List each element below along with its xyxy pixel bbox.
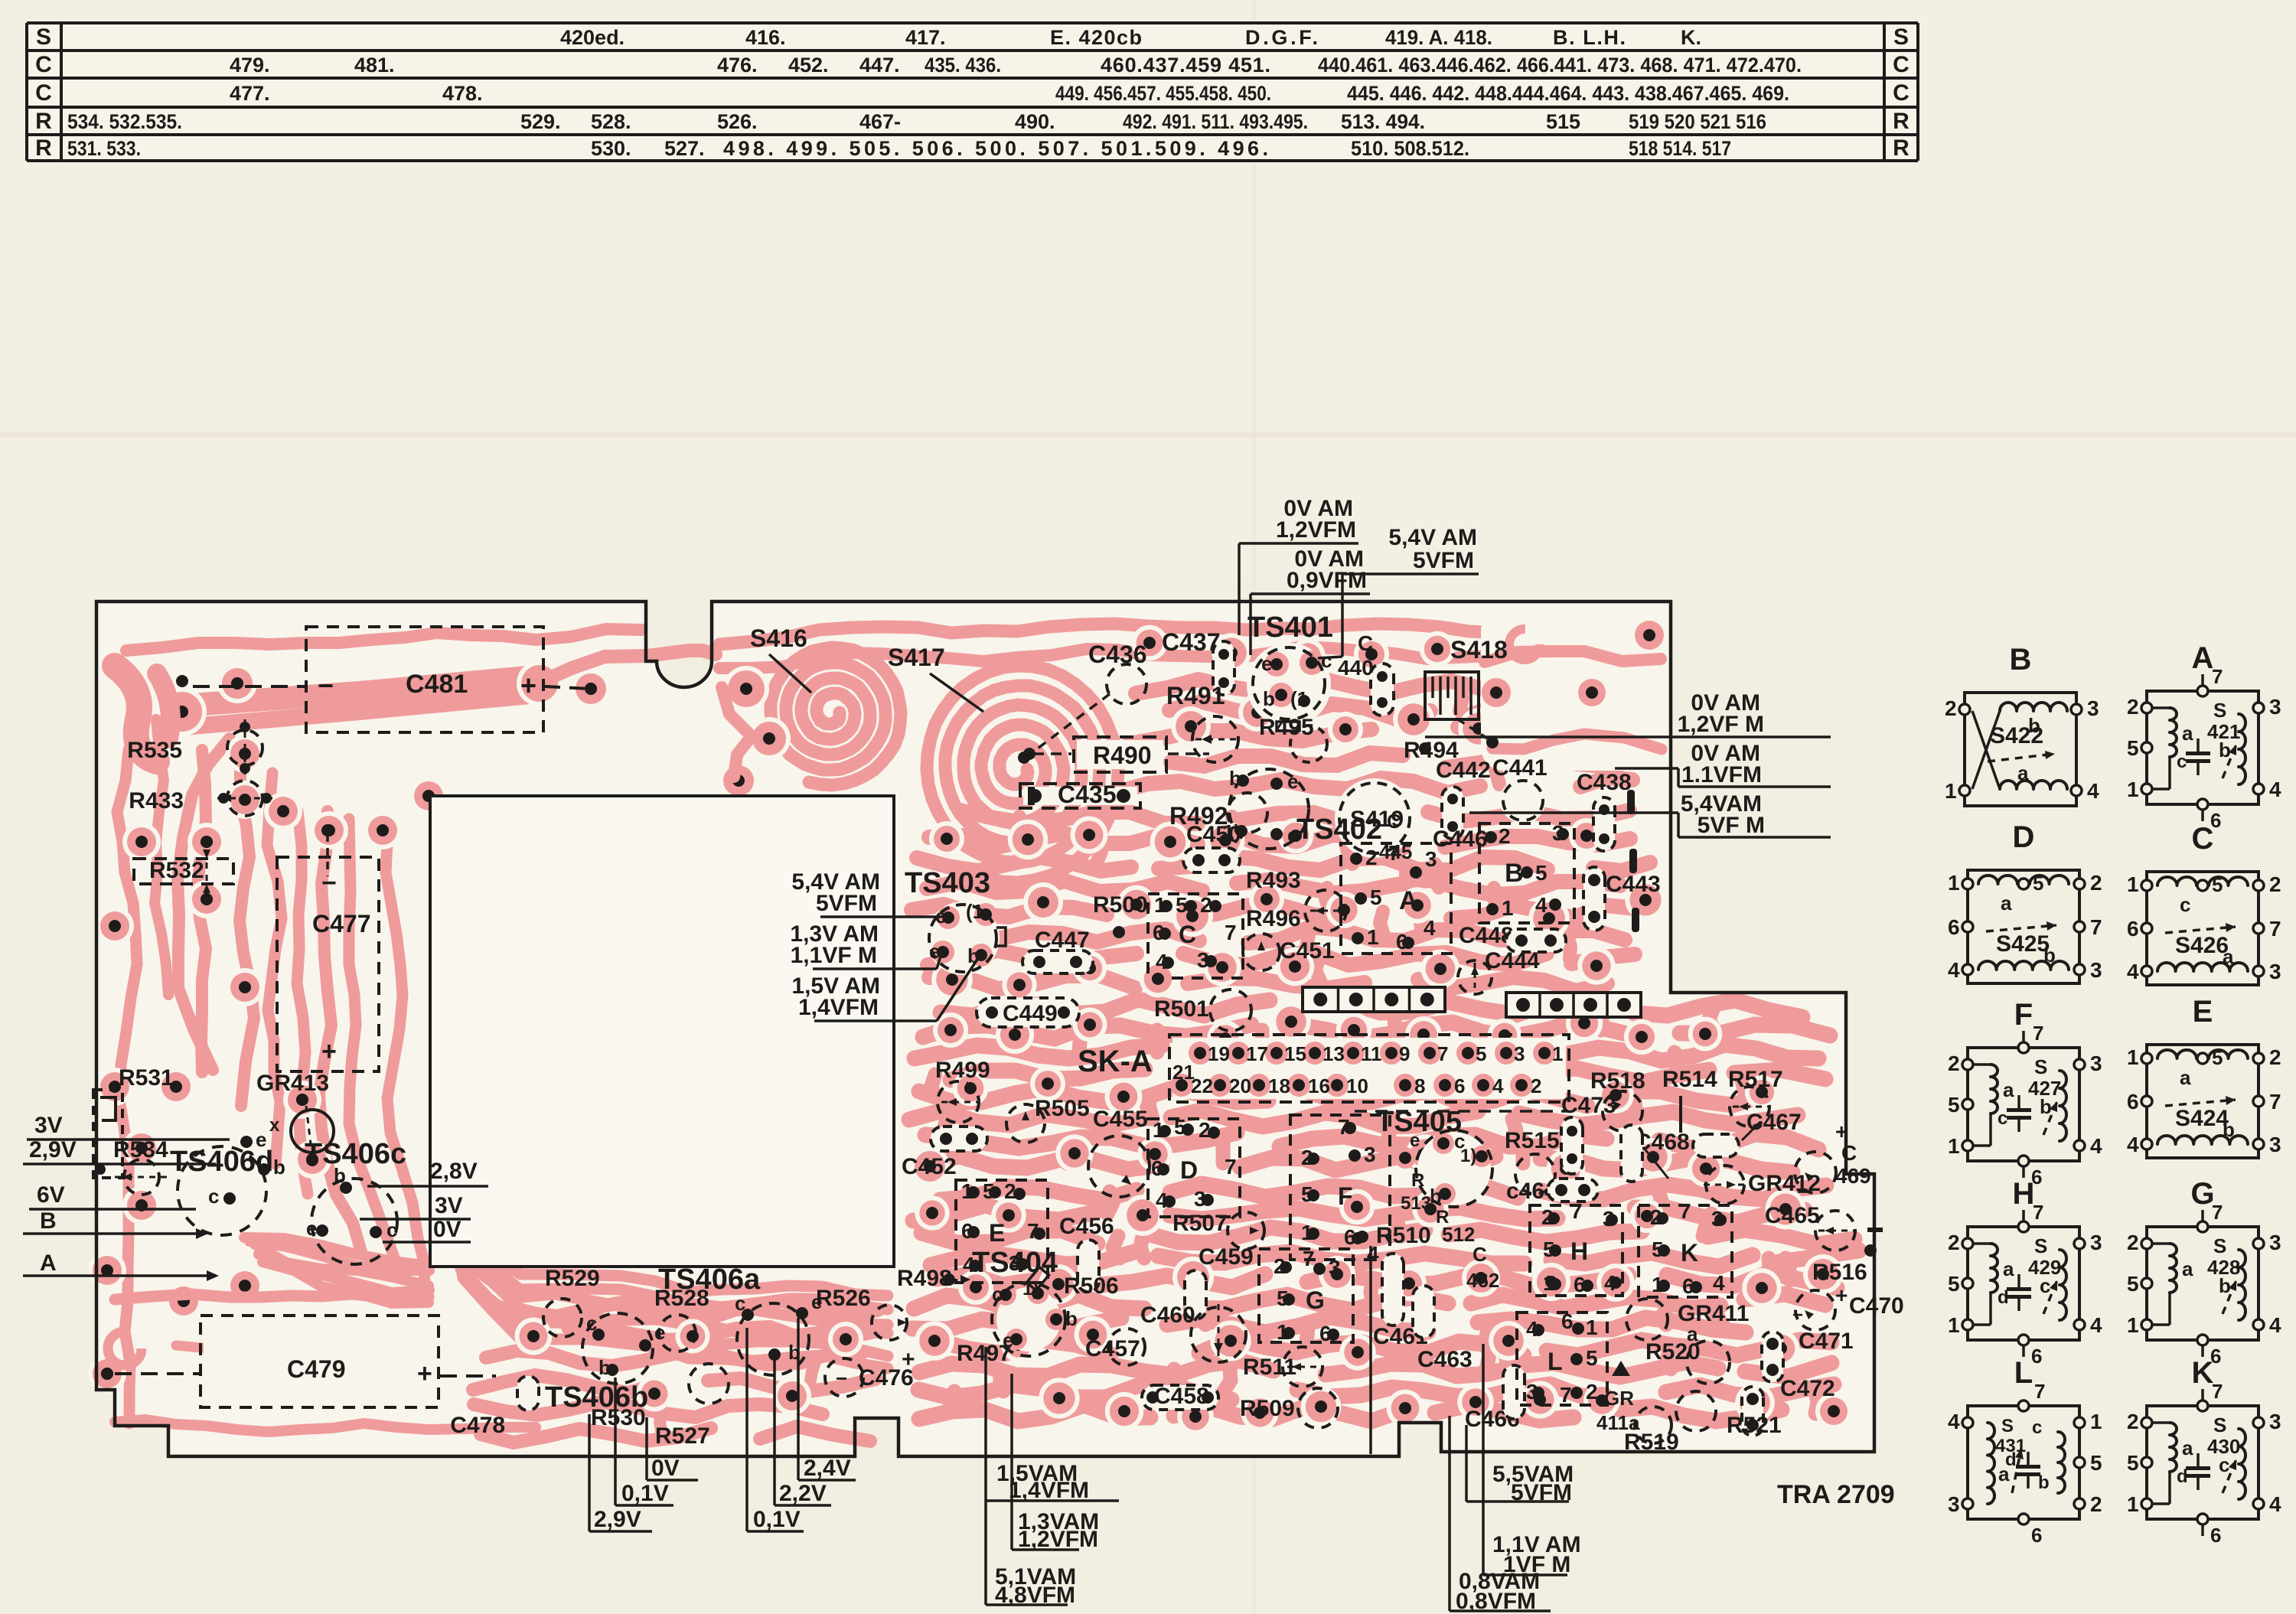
svg-text:5VFM: 5VFM — [816, 891, 877, 916]
svg-text:22: 22 — [1191, 1074, 1213, 1097]
svg-text:+: + — [520, 670, 536, 701]
svg-text:3: 3 — [2090, 958, 2102, 982]
svg-text:C435: C435 — [1058, 781, 1117, 808]
svg-text:510. 508.512.: 510. 508.512. — [1351, 137, 1469, 160]
svg-text:2: 2 — [1531, 1074, 1541, 1097]
svg-text:6V: 6V — [37, 1182, 65, 1208]
svg-text:4: 4 — [1713, 1271, 1725, 1295]
svg-text:460.437.459 451.: 460.437.459 451. — [1101, 54, 1270, 77]
svg-text:a: a — [2003, 1078, 2014, 1101]
svg-text:c: c — [735, 1292, 745, 1315]
svg-text:1,4VFM: 1,4VFM — [798, 995, 879, 1020]
svg-text:417.: 417. — [905, 26, 946, 49]
svg-text:1,2VFM: 1,2VFM — [1018, 1527, 1098, 1552]
svg-text:C458: C458 — [1154, 1384, 1209, 1409]
svg-text:3: 3 — [2090, 1231, 2102, 1254]
svg-text:518 514. 517: 518 514. 517 — [1629, 137, 1731, 160]
svg-text:3: 3 — [2269, 960, 2281, 983]
svg-text:2,2V: 2,2V — [779, 1481, 827, 1506]
svg-text:R: R — [1411, 1170, 1424, 1191]
svg-text:C436: C436 — [1088, 641, 1147, 668]
svg-text:R493: R493 — [1246, 868, 1301, 893]
svg-text:+: + — [902, 1347, 915, 1372]
svg-text:428: 428 — [2207, 1256, 2240, 1279]
svg-text:2,9V: 2,9V — [29, 1137, 77, 1162]
svg-text:B: B — [1505, 859, 1524, 888]
svg-text:6: 6 — [1948, 915, 1960, 939]
svg-text:481.: 481. — [354, 54, 395, 77]
svg-text:R506: R506 — [1064, 1273, 1119, 1299]
svg-text:b: b — [1430, 1185, 1442, 1208]
svg-text:S422: S422 — [1990, 723, 2043, 748]
svg-text:K: K — [2192, 1356, 2214, 1390]
svg-text:435. 436.: 435. 436. — [925, 54, 1001, 77]
svg-text:R527: R527 — [655, 1423, 710, 1449]
svg-text:S426: S426 — [2175, 933, 2229, 958]
svg-text:1): 1) — [1022, 1279, 1039, 1299]
svg-text:421: 421 — [2207, 720, 2240, 743]
svg-text:G: G — [2190, 1177, 2214, 1211]
svg-text:4: 4 — [2087, 779, 2099, 803]
svg-text:S416: S416 — [750, 624, 807, 652]
svg-text:R: R — [1436, 1207, 1449, 1228]
svg-text:447.: 447. — [859, 54, 900, 77]
svg-text:7: 7 — [1225, 1155, 1237, 1179]
svg-text:a: a — [2182, 1257, 2193, 1280]
svg-text:C441: C441 — [1492, 755, 1548, 781]
svg-text:L: L — [2014, 1356, 2033, 1390]
svg-text:+: + — [1835, 1120, 1848, 1143]
svg-text:R518: R518 — [1590, 1068, 1645, 1094]
svg-text:4: 4 — [2127, 1133, 2139, 1156]
svg-text:7: 7 — [2212, 1380, 2223, 1403]
svg-text:+: + — [1835, 1283, 1848, 1307]
svg-text:2: 2 — [2090, 1492, 2102, 1516]
svg-text:1,4VFM: 1,4VFM — [1009, 1478, 1089, 1503]
svg-text:519 520 521 516: 519 520 521 516 — [1629, 110, 1766, 133]
svg-text:C449: C449 — [1003, 1001, 1058, 1026]
svg-text:7: 7 — [2212, 1201, 2223, 1224]
svg-text:R521: R521 — [1727, 1413, 1782, 1438]
svg-text:R530: R530 — [591, 1405, 646, 1430]
svg-text:a: a — [2017, 761, 2029, 784]
svg-text:2: 2 — [1948, 1052, 1960, 1075]
svg-text:K.: K. — [1681, 26, 1701, 49]
svg-text:R532: R532 — [149, 858, 204, 883]
svg-text:1: 1 — [1586, 1316, 1598, 1339]
svg-text:C470: C470 — [1849, 1293, 1904, 1319]
svg-text:H: H — [2013, 1177, 2035, 1211]
svg-text:3: 3 — [2269, 1231, 2281, 1254]
svg-text:0V: 0V — [651, 1456, 680, 1481]
svg-text:c: c — [586, 1312, 597, 1335]
svg-text:1: 1 — [1552, 1042, 1563, 1065]
svg-text:4,8VFM: 4,8VFM — [995, 1583, 1075, 1608]
svg-text:6: 6 — [1561, 1309, 1574, 1333]
svg-text:c: c — [1321, 649, 1332, 672]
svg-text:4: 4 — [2127, 960, 2139, 983]
svg-text:R499: R499 — [935, 1058, 990, 1083]
svg-text:7: 7 — [2033, 1201, 2043, 1224]
svg-text:C460: C460 — [1140, 1303, 1195, 1328]
svg-text:R517: R517 — [1728, 1067, 1783, 1092]
svg-text:a: a — [2001, 892, 2012, 915]
svg-text:6: 6 — [2127, 917, 2139, 941]
svg-text:F: F — [1338, 1182, 1353, 1210]
svg-text:5: 5 — [1586, 1346, 1598, 1370]
svg-text:b: b — [1263, 687, 1275, 710]
svg-text:2: 2 — [2269, 872, 2281, 896]
svg-text:440.461. 463.446.462. 466.441.: 440.461. 463.446.462. 466.441. 473. 468.… — [1318, 54, 1802, 77]
svg-text:TS404: TS404 — [972, 1247, 1058, 1279]
svg-text:7: 7 — [1560, 1383, 1572, 1407]
svg-text:D: D — [1180, 1156, 1198, 1184]
svg-text:476.: 476. — [717, 54, 758, 77]
svg-text:C: C — [1358, 631, 1373, 655]
svg-text:3V: 3V — [435, 1193, 463, 1218]
svg-text:3: 3 — [2269, 1410, 2281, 1433]
svg-text:5VFM: 5VFM — [1413, 548, 1474, 573]
svg-text:1: 1 — [1948, 1313, 1960, 1337]
svg-text:TS401: TS401 — [1247, 611, 1333, 644]
svg-text:R: R — [1893, 135, 1910, 161]
svg-text:11: 11 — [1361, 1042, 1382, 1065]
svg-text:C: C — [1893, 52, 1910, 77]
svg-text:1): 1) — [1460, 1146, 1476, 1166]
svg-text:4: 4 — [1424, 916, 1436, 940]
svg-text:TRA 2709: TRA 2709 — [1777, 1480, 1895, 1509]
svg-text:R: R — [1893, 109, 1910, 134]
svg-text:4: 4 — [2269, 1313, 2281, 1337]
svg-text:e: e — [1003, 1329, 1013, 1352]
svg-text:0,1V: 0,1V — [753, 1507, 801, 1532]
svg-text:1,2VF M: 1,2VF M — [1678, 712, 1764, 737]
svg-text:1: 1 — [2127, 872, 2139, 896]
svg-text:R490: R490 — [1093, 742, 1152, 769]
svg-text:526.: 526. — [717, 110, 758, 133]
svg-text:C479: C479 — [287, 1355, 346, 1383]
svg-text:D.G.F.: D.G.F. — [1245, 26, 1318, 49]
svg-text:1: 1 — [1367, 925, 1379, 949]
svg-text:R501: R501 — [1154, 996, 1209, 1022]
svg-text:C472: C472 — [1780, 1376, 1835, 1401]
svg-text:e: e — [256, 1128, 266, 1151]
svg-text:479.: 479. — [230, 54, 270, 77]
svg-text:c: c — [2180, 893, 2190, 916]
svg-text:529.: 529. — [520, 110, 561, 133]
svg-text:C456: C456 — [1059, 1214, 1114, 1239]
svg-text:469: 469 — [1835, 1164, 1871, 1188]
svg-text:C438: C438 — [1577, 770, 1632, 795]
svg-text:C465: C465 — [1765, 1203, 1820, 1228]
svg-text:C: C — [35, 52, 52, 77]
svg-text:531. 533.: 531. 533. — [67, 137, 141, 160]
svg-text:492. 491. 511. 493.495.: 492. 491. 511. 493.495. — [1123, 110, 1308, 133]
svg-text:528.: 528. — [591, 110, 631, 133]
svg-text:1,1VF M: 1,1VF M — [791, 943, 877, 968]
svg-text:−: − — [318, 670, 334, 701]
svg-text:3: 3 — [1948, 1492, 1960, 1516]
svg-text:2: 2 — [2269, 1045, 2281, 1069]
svg-text:419. A. 418.: 419. A. 418. — [1385, 26, 1492, 49]
svg-text:S: S — [2213, 1234, 2226, 1257]
svg-text:R: R — [35, 109, 52, 134]
svg-text:3: 3 — [2269, 1133, 2281, 1156]
svg-text:R507: R507 — [1172, 1211, 1228, 1236]
svg-text:10: 10 — [1346, 1074, 1368, 1097]
svg-text:7: 7 — [2090, 915, 2102, 939]
svg-text:C477: C477 — [312, 910, 371, 937]
svg-text:0V: 0V — [433, 1217, 461, 1242]
svg-text:SK-A: SK-A — [1078, 1045, 1153, 1078]
svg-text:7: 7 — [2212, 665, 2223, 688]
svg-text:467-: 467- — [859, 110, 901, 133]
svg-text:C467: C467 — [1746, 1110, 1802, 1135]
svg-text:2: 2 — [2127, 1231, 2139, 1254]
svg-text:515: 515 — [1546, 110, 1580, 133]
svg-text:3: 3 — [2269, 695, 2281, 719]
svg-text:1: 1 — [2127, 778, 2139, 801]
svg-text:c: c — [1998, 1108, 2007, 1129]
svg-text:3: 3 — [1425, 847, 1437, 871]
svg-text:R520: R520 — [1645, 1339, 1701, 1365]
svg-text:1: 1 — [1948, 871, 1960, 895]
svg-text:7: 7 — [1679, 1199, 1691, 1223]
svg-text:A: A — [2192, 641, 2214, 675]
svg-text:S417: S417 — [888, 644, 945, 671]
svg-text:1: 1 — [1502, 896, 1514, 920]
svg-text:6: 6 — [1454, 1074, 1465, 1097]
svg-text:490.: 490. — [1015, 110, 1055, 133]
svg-text:1: 1 — [2090, 1410, 2102, 1433]
svg-text:−: − — [321, 869, 337, 898]
svg-text:15: 15 — [1284, 1042, 1306, 1065]
svg-text:GR412: GR412 — [1748, 1171, 1821, 1196]
svg-text:7: 7 — [1437, 1042, 1448, 1065]
svg-text:D: D — [2013, 820, 2035, 854]
svg-text:5: 5 — [1370, 885, 1382, 909]
svg-text:2: 2 — [1365, 846, 1378, 869]
svg-text:a: a — [2182, 1436, 2193, 1459]
svg-text:5VFM: 5VFM — [1511, 1480, 1572, 1505]
svg-text:513: 513 — [1401, 1193, 1431, 1214]
svg-text:F: F — [2014, 998, 2033, 1032]
svg-text:a: a — [2003, 1257, 2014, 1280]
svg-text:C455: C455 — [1093, 1107, 1148, 1132]
svg-text:G: G — [1306, 1286, 1325, 1314]
svg-text:C481: C481 — [406, 670, 468, 699]
svg-text:R531: R531 — [119, 1065, 174, 1091]
svg-text:4: 4 — [2090, 1313, 2102, 1337]
svg-text:1: 1 — [2127, 1313, 2139, 1337]
svg-text:3: 3 — [2087, 696, 2099, 720]
svg-text:GR: GR — [1604, 1387, 1634, 1410]
svg-text:e: e — [1287, 770, 1298, 793]
svg-text:S: S — [2034, 1234, 2047, 1257]
svg-text:R510: R510 — [1376, 1223, 1431, 1248]
svg-text:▬: ▬ — [1867, 1219, 1883, 1236]
svg-text:C443: C443 — [1606, 872, 1661, 897]
svg-text:H: H — [1570, 1237, 1588, 1265]
svg-text:4: 4 — [1948, 958, 1960, 982]
svg-text:5,4V AM: 5,4V AM — [1388, 525, 1477, 550]
svg-text:C450: C450 — [1186, 822, 1241, 847]
svg-text:C: C — [2192, 822, 2214, 856]
svg-text:1,2VFM: 1,2VFM — [1276, 517, 1356, 543]
svg-text:B: B — [2010, 643, 2032, 677]
svg-text:2,4V: 2,4V — [804, 1456, 851, 1481]
svg-text:513. 494.: 513. 494. — [1341, 110, 1425, 133]
svg-text:c: c — [386, 1218, 397, 1241]
svg-text:18: 18 — [1268, 1074, 1290, 1097]
svg-text:2: 2 — [1499, 824, 1511, 848]
svg-text:−: − — [836, 1367, 847, 1390]
svg-text:3: 3 — [1329, 1256, 1341, 1280]
svg-text:K: K — [1681, 1239, 1698, 1267]
svg-text:445. 446. 442. 448.444.464. 44: 445. 446. 442. 448.444.464. 443. 438.467… — [1347, 82, 1789, 105]
svg-text:530.: 530. — [591, 137, 631, 160]
svg-text:5: 5 — [2090, 1451, 2102, 1475]
svg-text:B. L.H.: B. L.H. — [1553, 26, 1626, 49]
svg-text:0,8VFM: 0,8VFM — [1456, 1589, 1536, 1614]
svg-text:b: b — [598, 1356, 611, 1379]
svg-text:b: b — [334, 1164, 346, 1187]
svg-text:TS406a: TS406a — [658, 1263, 761, 1296]
svg-text:5: 5 — [1948, 1272, 1960, 1296]
svg-text:429: 429 — [2028, 1256, 2061, 1279]
svg-text:R535: R535 — [127, 738, 182, 763]
svg-text:a: a — [2182, 722, 2193, 745]
svg-text:R529: R529 — [545, 1266, 600, 1291]
svg-text:9: 9 — [1399, 1042, 1410, 1065]
svg-text:C459: C459 — [1199, 1244, 1254, 1270]
svg-text:A: A — [40, 1250, 57, 1276]
svg-text:17: 17 — [1246, 1042, 1268, 1065]
svg-text:2: 2 — [2127, 695, 2139, 719]
svg-text:b: b — [273, 1156, 285, 1179]
svg-text:462: 462 — [1466, 1269, 1499, 1292]
svg-text:2: 2 — [2090, 871, 2102, 895]
svg-text:c: c — [2032, 1417, 2042, 1438]
svg-text:E: E — [2193, 995, 2213, 1029]
svg-text:e: e — [1261, 652, 1272, 675]
svg-text:−: − — [1792, 1305, 1803, 1325]
svg-text:B: B — [40, 1208, 57, 1234]
svg-text:C: C — [35, 80, 52, 106]
svg-text:S424: S424 — [2175, 1106, 2229, 1131]
svg-text:6: 6 — [2210, 1524, 2221, 1547]
svg-text:e: e — [1410, 1130, 1420, 1151]
svg-text:E: E — [989, 1219, 1005, 1247]
svg-text:477.: 477. — [230, 82, 270, 105]
svg-text:L: L — [1548, 1348, 1563, 1375]
svg-text:R: R — [35, 135, 52, 161]
svg-text:1: 1 — [1948, 1134, 1960, 1158]
svg-text:16: 16 — [1308, 1074, 1330, 1097]
svg-text:x: x — [269, 1115, 280, 1136]
svg-text:7: 7 — [1388, 841, 1401, 865]
svg-text:7: 7 — [2269, 917, 2281, 941]
svg-text:1: 1 — [2127, 1045, 2139, 1069]
svg-text:534. 532.535.: 534. 532.535. — [67, 110, 182, 133]
svg-text:427: 427 — [2028, 1077, 2061, 1100]
svg-text:R500: R500 — [1093, 892, 1148, 918]
svg-text:b: b — [1065, 1307, 1078, 1330]
svg-text:E. 420cb: E. 420cb — [1050, 26, 1142, 49]
svg-text:GR413: GR413 — [256, 1071, 329, 1096]
svg-text:R433: R433 — [129, 788, 184, 814]
svg-text:R509: R509 — [1240, 1396, 1295, 1421]
svg-text:6: 6 — [2031, 1524, 2042, 1547]
svg-text:TS406c: TS406c — [305, 1138, 406, 1170]
svg-text:7: 7 — [2269, 1090, 2281, 1113]
svg-text:1: 1 — [1945, 779, 1957, 803]
svg-text:420ed.: 420ed. — [560, 26, 625, 49]
svg-text:0,9VFM: 0,9VFM — [1287, 568, 1367, 593]
svg-text:7: 7 — [1570, 1199, 1583, 1223]
svg-text:+: + — [417, 1359, 432, 1388]
svg-text:4: 4 — [1948, 1410, 1960, 1433]
svg-text:c: c — [208, 1185, 219, 1208]
svg-text:4: 4 — [2269, 1492, 2281, 1516]
svg-text:R516: R516 — [1812, 1260, 1867, 1285]
svg-text:C452: C452 — [902, 1154, 957, 1179]
svg-text:4: 4 — [1604, 1271, 1616, 1295]
svg-text:S425: S425 — [1996, 931, 2050, 957]
svg-text:C: C — [1893, 80, 1910, 106]
svg-text:19: 19 — [1208, 1042, 1230, 1065]
svg-text:4: 4 — [2269, 778, 2281, 801]
svg-text:416.: 416. — [745, 26, 786, 49]
svg-text:A: A — [1399, 886, 1418, 915]
svg-text:c: c — [992, 1283, 1003, 1306]
svg-text:5: 5 — [1476, 1042, 1486, 1065]
svg-text:5: 5 — [2127, 1272, 2139, 1296]
svg-text:R496: R496 — [1246, 906, 1301, 931]
svg-text:3: 3 — [2090, 1052, 2102, 1075]
svg-text:S: S — [36, 24, 51, 50]
svg-text:2,8V: 2,8V — [430, 1159, 478, 1184]
svg-text:S: S — [2034, 1055, 2047, 1078]
svg-text:TS403: TS403 — [905, 867, 990, 899]
svg-text:R495: R495 — [1259, 715, 1314, 740]
svg-text:C471: C471 — [1799, 1329, 1854, 1354]
svg-text:1.1VFM: 1.1VFM — [1681, 762, 1762, 787]
svg-text:2: 2 — [2127, 1410, 2139, 1433]
svg-text:C442: C442 — [1436, 758, 1491, 783]
svg-text:C463: C463 — [1417, 1347, 1473, 1372]
svg-text:C: C — [1387, 810, 1401, 833]
svg-text:449. 456.457. 455.458. 450.: 449. 456.457. 455.458. 450. — [1055, 82, 1271, 105]
svg-text:b: b — [1229, 767, 1241, 790]
svg-text:C478: C478 — [450, 1413, 505, 1438]
svg-text:527.: 527. — [664, 137, 705, 160]
svg-text:20: 20 — [1229, 1074, 1251, 1097]
svg-text:S: S — [2001, 1416, 2014, 1436]
svg-text:13: 13 — [1322, 1042, 1345, 1065]
svg-text:d: d — [2005, 1449, 2017, 1470]
svg-text:C: C — [1179, 921, 1196, 948]
svg-text:R526: R526 — [816, 1286, 871, 1311]
svg-text:d: d — [1998, 1287, 2009, 1308]
svg-text:S418: S418 — [1450, 636, 1508, 664]
svg-text:440: 440 — [1338, 656, 1374, 680]
svg-text:7: 7 — [1225, 921, 1237, 944]
svg-text:2,9V: 2,9V — [594, 1507, 641, 1532]
svg-text:R514: R514 — [1662, 1067, 1717, 1092]
svg-text:3: 3 — [1514, 1042, 1525, 1065]
svg-text:5: 5 — [2127, 1451, 2139, 1475]
